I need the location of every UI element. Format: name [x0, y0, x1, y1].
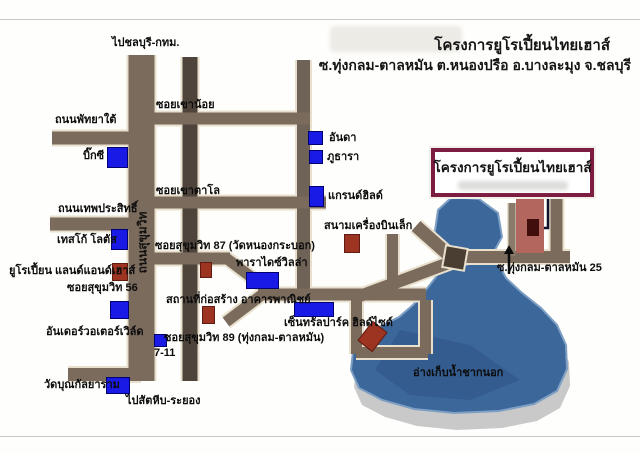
landmark-construction	[202, 306, 215, 324]
label-soi-89: ซอยสุขุมวิท 89 (ทุ่งกลม-ตาลหมัน)	[164, 332, 324, 344]
label-tesco: เทสโก้ โลตัส	[57, 234, 117, 246]
label-anda: อันดา	[329, 132, 356, 144]
label-sukhumvit-road: ถนนสุขุมวิท	[134, 198, 153, 288]
label-euro-land-house: ยูโรเปี้ยน แลนด์แอนด์เฮาส์	[9, 265, 135, 277]
landmark-soi56	[110, 301, 129, 319]
label-wat-bun: วัดบุณกัลยาราม	[44, 379, 120, 391]
label-to-sattahip: ไปสัตหีบ-ระยอง	[126, 395, 201, 407]
landmark-paradise-villa	[246, 272, 279, 289]
label-soi-khao-noi: ซอยเขาน้อย	[156, 99, 215, 111]
label-soi-khao-talo: ซอยเขาตาโล	[156, 185, 220, 197]
label-soi-56: ซอยสุขุมวิท 56	[67, 282, 138, 294]
road-crossing	[442, 245, 467, 270]
label-central-park: เซ็นทรัลปาร์ค ฮิลด์ไซด์	[284, 317, 393, 329]
landmark-phuthara	[309, 150, 323, 164]
landmark-grand-hill	[309, 186, 324, 207]
landmark-big-c	[107, 147, 128, 168]
project-sign: โครงการยูโรเปี้ยนไทยเฮาส์	[431, 148, 594, 197]
landmark-anda	[308, 131, 323, 145]
label-airfield: สนามเครื่องบินเล็ก	[324, 220, 412, 232]
label-soi-25: ซ.ทุ่งกลม-ตาลหมัน 25	[497, 262, 602, 274]
label-reservoir: อ่างเก็บน้ำชากนอก	[413, 367, 503, 379]
landmark-airfield	[344, 234, 360, 253]
page-title: โครงการยูโรเปี้ยนไทยเฮาส์	[434, 33, 610, 57]
label-phuthara: ภูธารา	[327, 151, 359, 163]
label-to-chonburi: ไปชลบุรี-กทม.	[112, 37, 180, 49]
label-construction: สถานที่ก่อสร้าง อาคารพาณิชย์	[166, 294, 311, 306]
label-underwater-world: อันเดอร์วอเตอร์เวิล์ด	[46, 326, 144, 338]
map-canvas: โครงการยูโรเปี้ยนไทยเฮาส์ ซ.ทุ่งกลม-ตาลห…	[0, 0, 640, 453]
page-subtitle: ซ.ทุ่งกลม-ตาลหมัน ต.หนองปรือ อ.บางละมุง …	[319, 55, 631, 77]
project-sign-text: โครงการยูโรเปี้ยนไทยเฮาส์	[433, 156, 591, 178]
label-paradise-villa: พาราไดซ์วิลล่า	[236, 257, 308, 269]
label-grand-hill: แกรนด์ฮิลด์	[328, 190, 383, 202]
label-soi-87: ซอยสุขุมวิท 87 (วัดหนองกระบอก)	[155, 240, 315, 252]
label-7-11: 7-11	[154, 347, 175, 359]
label-thepprasit: ถนนเทพประสิทธิ์	[58, 203, 137, 215]
project-sign-faded-line	[458, 181, 568, 190]
label-pattaya-tai: ถนนพัทยาใต้	[55, 114, 116, 126]
project-building	[527, 219, 539, 236]
landmark-soi87-building	[200, 262, 212, 278]
label-big-c: บิ๊กซี	[83, 150, 104, 162]
